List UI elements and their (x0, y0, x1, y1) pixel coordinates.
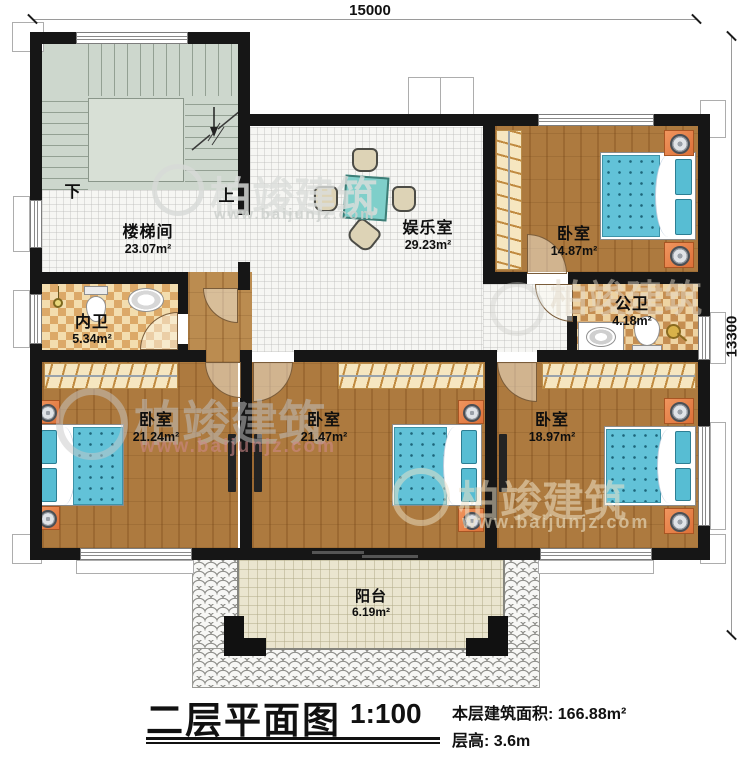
wall-bath-inner-top (30, 272, 188, 284)
label-bedroom-s: 卧室 21.47m² (264, 412, 384, 444)
window-bump-bottom-se (538, 560, 654, 574)
stair-treads-top (88, 44, 238, 96)
room-name: 公卫 (572, 296, 692, 314)
wall-bedroom-se-top (537, 350, 710, 362)
chair-west (314, 186, 338, 212)
dimension-top-value: 15000 (330, 2, 410, 19)
room-name: 卧室 (492, 412, 612, 430)
label-balcony: 阳台 6.19m² (311, 589, 431, 619)
nightstand (664, 130, 694, 156)
balcony-pillar-right-foot (466, 638, 488, 656)
wall-bath-inner-east-a (178, 272, 188, 314)
label-bedroom-se: 卧室 18.97m² (492, 412, 612, 444)
window-bath-public-right (698, 316, 710, 360)
room-name: 楼梯间 (88, 224, 208, 242)
watermark-logo (392, 468, 450, 526)
sink-public-basin (586, 327, 616, 347)
room-area: 14.87m² (514, 244, 634, 258)
room-name: 阳台 (311, 589, 431, 606)
label-entertainment: 娱乐室 29.23m² (368, 220, 488, 252)
watermark-logo (490, 282, 544, 336)
window-bump-bay-left (408, 77, 441, 115)
balcony-sliding-door-leaf-2 (362, 555, 418, 558)
title-underline-thick (146, 737, 440, 740)
room-area: 21.47m² (264, 430, 384, 444)
pendant-light-inner (53, 298, 63, 308)
window-stairwell-left (30, 200, 42, 248)
room-name: 娱乐室 (368, 220, 488, 238)
label-bedroom-ne: 卧室 14.87m² (514, 226, 634, 258)
room-area: 29.23m² (368, 238, 488, 252)
balcony-sliding-door-leaf-1 (312, 551, 364, 554)
room-area: 6.19m² (311, 606, 431, 619)
window-bedroom-se-bottom (540, 548, 652, 560)
label-bath-public: 公卫 4.18m² (572, 296, 692, 328)
room-name: 内卫 (32, 314, 152, 332)
toilet-tank-inner (84, 286, 108, 295)
plan-scale: 1:100 (350, 698, 422, 730)
window-bump-left-1 (13, 196, 30, 252)
chair-east (392, 186, 416, 212)
label-bath-inner: 内卫 5.34m² (32, 314, 152, 346)
floor-plan-canvas: 柏竣建筑 www.baijunjz.com 柏竣建筑 www.baijunjz.… (0, 0, 750, 757)
wardrobe-bedroom-s (338, 363, 484, 389)
window-stairwell-top (76, 32, 188, 44)
floor-height-note: 层高: 3.6m (452, 727, 530, 751)
balcony-pillar-left (224, 616, 244, 656)
window-bedroom-se-right (698, 426, 710, 526)
label-stair-up: 上 (212, 188, 242, 206)
wall-bath-inner-bottom (30, 350, 206, 362)
sink-inner-bath (128, 288, 164, 312)
window-bump-right-bedroom-se (710, 422, 726, 530)
bed-bedroom-se (604, 426, 696, 506)
balcony-pillar-left-foot (244, 638, 266, 656)
room-name: 卧室 (264, 412, 384, 430)
window-bump-bay-right (440, 77, 474, 115)
nightstand (664, 242, 694, 268)
wall-stair-east-stub (238, 262, 250, 290)
dimension-right-value: 13300 (724, 307, 741, 367)
wall-bedroom-s-top (294, 350, 486, 362)
plan-title: 二层平面图 (146, 690, 341, 744)
window-bump-left-2 (13, 290, 30, 348)
label-stair-down: 下 (58, 184, 88, 202)
wall-bedrooms-s-se-divider (485, 350, 497, 560)
tv-bedroom-sw (228, 434, 236, 492)
room-name: 卧室 (514, 226, 634, 244)
label-stairwell: 楼梯间 23.07m² (88, 224, 208, 256)
dimension-line-top (32, 19, 697, 20)
room-area: 23.07m² (88, 242, 208, 256)
nightstand (664, 398, 694, 424)
stair-treads-left (42, 96, 88, 190)
title-underline-thin (146, 742, 440, 744)
window-bump-bottom-sw (76, 560, 194, 574)
wardrobe-bedroom-sw (44, 363, 178, 389)
wall-bedroom-ne-west (483, 126, 495, 284)
window-bedroom-sw-bottom (80, 548, 192, 560)
nightstand (458, 400, 484, 424)
game-table (343, 175, 390, 222)
room-name: 卧室 (96, 412, 216, 430)
floor-area-note: 本层建筑面积: 166.88m² (452, 700, 626, 724)
tv-bedroom-s (254, 434, 262, 492)
window-bedroom-ne-top (538, 114, 654, 126)
room-area: 18.97m² (492, 430, 612, 444)
room-area: 5.34m² (32, 332, 152, 346)
room-area: 21.24m² (96, 430, 216, 444)
nightstand (664, 508, 694, 534)
chair-north (352, 148, 378, 172)
nightstand (458, 508, 484, 532)
watermark-logo (152, 164, 204, 216)
wall-bath-public-top (568, 272, 710, 284)
wall-bedrooms-sw-s-divider (240, 350, 252, 560)
room-area: 4.18m² (572, 314, 692, 328)
balcony-pillar-right (488, 616, 508, 656)
label-bedroom-sw: 卧室 21.24m² (96, 412, 216, 444)
wardrobe-bedroom-se (542, 363, 696, 389)
